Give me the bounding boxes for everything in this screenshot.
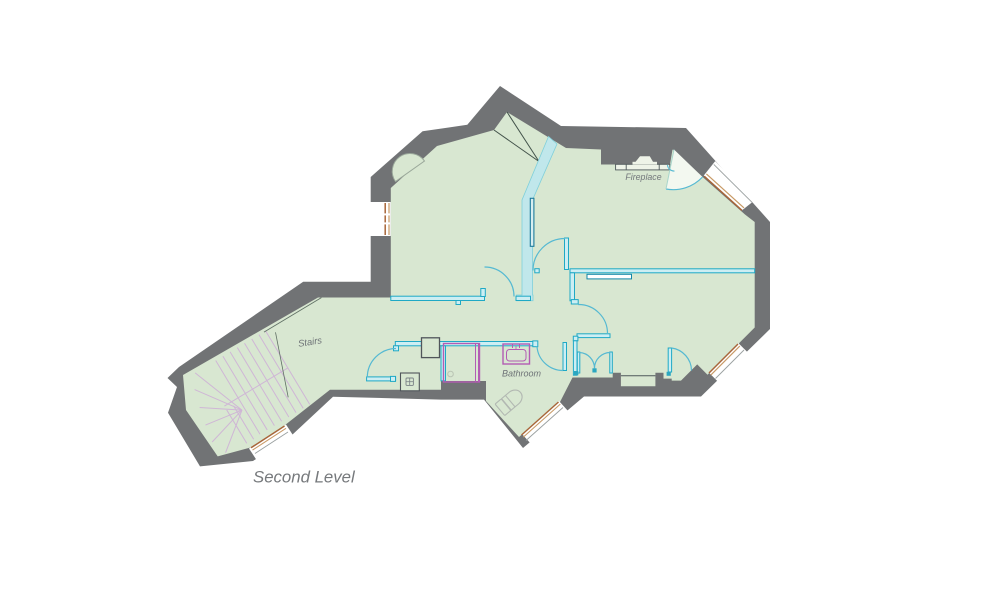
svg-text:Fireplace: Fireplace — [625, 172, 661, 182]
svg-text:Bathroom: Bathroom — [502, 369, 542, 379]
svg-text:Second Level: Second Level — [253, 468, 356, 487]
